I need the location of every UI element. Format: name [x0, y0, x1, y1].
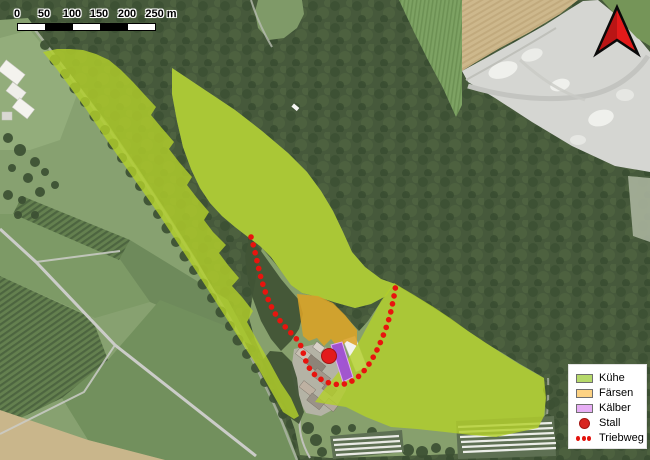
map-legend: Kühe Färsen Kälber Stall Triebweg [568, 364, 647, 449]
map-viewport: 0 50 100 150 200 250 m Kühe Färsen Kälbe… [0, 0, 650, 460]
legend-swatch-kuehe [576, 374, 593, 383]
legend-item-kaelber: Kälber [576, 401, 646, 416]
legend-label-triebweg: Triebweg [599, 433, 644, 444]
legend-label-faersen: Färsen [599, 388, 633, 399]
map-canvas[interactable] [0, 0, 650, 460]
legend-item-kuehe: Kühe [576, 371, 646, 386]
legend-swatch-kaelber [576, 404, 593, 413]
legend-item-triebweg: Triebweg [576, 431, 646, 446]
legend-label-kuehe: Kühe [599, 373, 625, 384]
legend-swatch-stall-circle [579, 418, 590, 429]
legend-item-faersen: Färsen [576, 386, 646, 401]
legend-swatch-triebweg-dots [576, 436, 593, 441]
legend-swatch-faersen [576, 389, 593, 398]
legend-label-kaelber: Kälber [599, 403, 631, 414]
stall-marker [322, 349, 337, 364]
legend-item-stall: Stall [576, 416, 646, 431]
legend-label-stall: Stall [599, 418, 620, 429]
